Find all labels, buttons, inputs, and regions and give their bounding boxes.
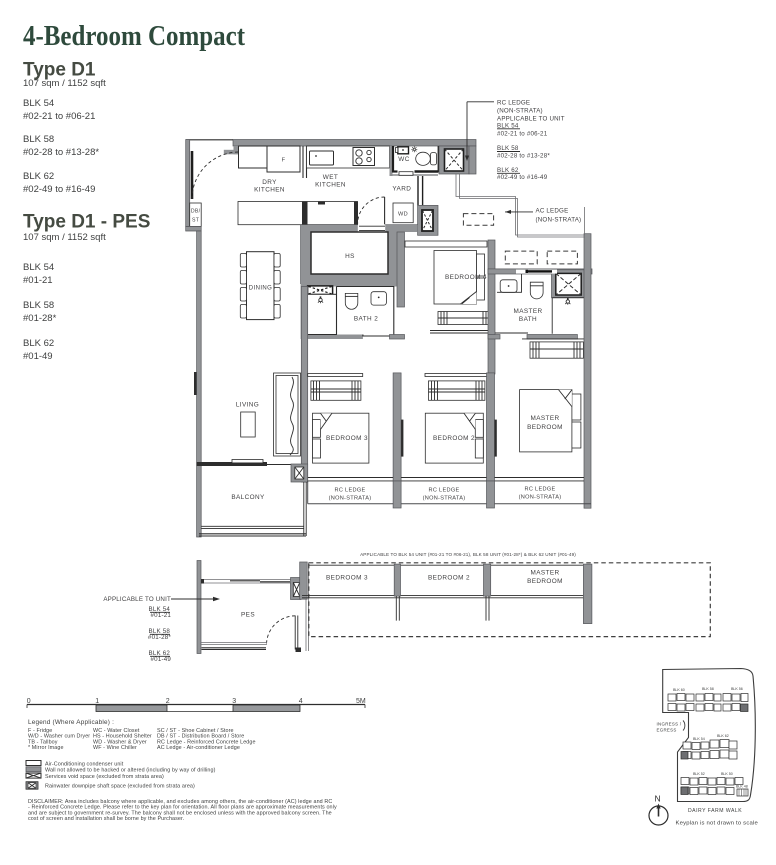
- svg-text:(NON-STRATA): (NON-STRATA): [519, 495, 562, 501]
- svg-text:BLK 62: BLK 62: [497, 167, 519, 174]
- svg-text:RC LEDGE: RC LEDGE: [497, 99, 530, 106]
- svg-text:BATH 2: BATH 2: [354, 316, 378, 323]
- svg-text:RC LEDGE: RC LEDGE: [429, 488, 460, 494]
- svg-text:(NON-STRATA): (NON-STRATA): [497, 108, 543, 115]
- svg-text:BLK 62: BLK 62: [23, 171, 54, 182]
- svg-text:cost of screen and installatio: cost of screen and installation shall be…: [28, 816, 184, 822]
- svg-text:#01-49: #01-49: [151, 656, 172, 663]
- svg-text:Services void space (excluded: Services void space (excluded from strat…: [45, 774, 164, 780]
- svg-text:YARD: YARD: [392, 186, 411, 193]
- svg-text:F: F: [282, 158, 286, 164]
- svg-text:BLK 58: BLK 58: [497, 145, 519, 152]
- svg-text:#01-28*: #01-28*: [148, 634, 171, 641]
- svg-text:AC Ledge - Air-conditioner Led: AC Ledge - Air-conditioner Ledge: [157, 745, 240, 751]
- svg-text:BALCONY: BALCONY: [231, 494, 265, 501]
- svg-text:(NON-STRATA): (NON-STRATA): [329, 496, 372, 502]
- svg-text:BEDROOM 3: BEDROOM 3: [326, 435, 368, 442]
- svg-text:WD: WD: [398, 212, 408, 218]
- svg-text:Type D1 - PES: Type D1 - PES: [23, 212, 150, 233]
- svg-text:WF - Wine Chiller: WF - Wine Chiller: [93, 745, 137, 751]
- svg-text:(NON-STRATA): (NON-STRATA): [536, 217, 582, 224]
- svg-text:107 sqm / 1152 sqft: 107 sqm / 1152 sqft: [23, 232, 106, 243]
- svg-text:107 sqm / 1152 sqft: 107 sqm / 1152 sqft: [23, 78, 106, 89]
- svg-text:BLK 58: BLK 58: [702, 687, 714, 691]
- svg-text:KITCHEN: KITCHEN: [254, 187, 285, 194]
- svg-text:APPLICABLE TO UNIT: APPLICABLE TO UNIT: [103, 596, 171, 603]
- svg-text:BEDROOM 4: BEDROOM 4: [445, 274, 487, 281]
- svg-text:#01-28*: #01-28*: [23, 313, 57, 324]
- svg-text:BLK 58: BLK 58: [23, 300, 54, 311]
- svg-text:#02-28 to #13-28*: #02-28 to #13-28*: [497, 152, 550, 159]
- svg-text:#02-49 to #16-49: #02-49 to #16-49: [497, 174, 548, 181]
- svg-text:LIVING: LIVING: [236, 402, 259, 409]
- svg-text:BLK 52: BLK 52: [693, 772, 705, 776]
- svg-text:BLK 62: BLK 62: [717, 734, 729, 738]
- svg-text:MASTER: MASTER: [530, 415, 559, 422]
- svg-text:BEDROOM 2: BEDROOM 2: [433, 435, 475, 442]
- svg-text:#01-49: #01-49: [23, 351, 53, 362]
- svg-text:N: N: [655, 794, 661, 804]
- svg-text:BLK 50: BLK 50: [721, 772, 733, 776]
- svg-text:INGRESS /: INGRESS /: [657, 722, 682, 727]
- svg-text:BEDROOM: BEDROOM: [527, 578, 563, 585]
- svg-text:DAIRY FARM WALK: DAIRY FARM WALK: [688, 808, 742, 814]
- svg-text:#02-21 to #06-21: #02-21 to #06-21: [23, 111, 95, 122]
- svg-text:#02-21 to #06-21: #02-21 to #06-21: [497, 131, 548, 138]
- svg-text:BLK 58: BLK 58: [23, 134, 54, 145]
- svg-text:#02-49 to #16-49: #02-49 to #16-49: [23, 184, 95, 195]
- svg-text:Keyplan is not drawn to scale: Keyplan is not drawn to scale: [676, 821, 759, 827]
- svg-text:DINING: DINING: [249, 286, 272, 292]
- svg-text:WC: WC: [398, 156, 409, 163]
- svg-text:#02-28 to #13-28*: #02-28 to #13-28*: [23, 147, 99, 158]
- svg-text:Rainwater downpipe shaft space: Rainwater downpipe shaft space (excluded…: [45, 784, 195, 790]
- svg-text:DB/: DB/: [191, 209, 201, 215]
- svg-text:RC LEDGE: RC LEDGE: [525, 487, 556, 493]
- svg-text:#01-21: #01-21: [151, 612, 172, 619]
- svg-text:BLK 48: BLK 48: [736, 785, 748, 789]
- svg-text:DRY: DRY: [262, 179, 277, 186]
- svg-text:BLK 54: BLK 54: [497, 122, 519, 129]
- svg-text:RC LEDGE: RC LEDGE: [335, 488, 366, 494]
- svg-text:BLK 60: BLK 60: [673, 688, 685, 692]
- svg-text:#01-21: #01-21: [23, 275, 53, 286]
- svg-text:BATH: BATH: [519, 316, 537, 323]
- svg-text:PES: PES: [241, 612, 255, 619]
- svg-text:MASTER: MASTER: [530, 570, 559, 577]
- svg-text:* Mirror Image: * Mirror Image: [28, 745, 64, 751]
- svg-text:BLK 56: BLK 56: [731, 687, 743, 691]
- svg-text:BLK 62: BLK 62: [23, 338, 54, 349]
- svg-text:BLK 54: BLK 54: [23, 262, 54, 273]
- svg-text:HS: HS: [345, 253, 355, 260]
- svg-text:4-Bedroom Compact: 4-Bedroom Compact: [23, 20, 245, 52]
- svg-text:WET: WET: [323, 174, 338, 181]
- svg-text:BEDROOM 2: BEDROOM 2: [428, 575, 470, 582]
- svg-text:Wall not allowed to be hacked: Wall not allowed to be hacked or altered…: [45, 768, 216, 774]
- svg-text:APPLICABLE TO UNIT: APPLICABLE TO UNIT: [497, 115, 565, 122]
- svg-text:BEDROOM: BEDROOM: [527, 424, 563, 431]
- svg-text:Air-Conditioning condenser uni: Air-Conditioning condenser unit: [45, 761, 124, 767]
- svg-text:APPLICABLE TO BLK 54 UNIT (#01: APPLICABLE TO BLK 54 UNIT (#01-21 TO #06…: [360, 552, 576, 557]
- svg-text:KITCHEN: KITCHEN: [315, 182, 346, 189]
- svg-text:ST: ST: [192, 218, 200, 224]
- svg-text:AC LEDGE: AC LEDGE: [536, 208, 569, 215]
- svg-text:BLK 54: BLK 54: [23, 98, 54, 109]
- svg-text:Legend (Where Applicable) :: Legend (Where Applicable) :: [28, 719, 114, 726]
- svg-text:BLK 54: BLK 54: [693, 737, 705, 741]
- svg-text:BEDROOM 3: BEDROOM 3: [326, 575, 368, 582]
- svg-text:(NON-STRATA): (NON-STRATA): [423, 496, 466, 502]
- svg-text:MASTER: MASTER: [513, 308, 542, 315]
- svg-text:EGRESS: EGRESS: [657, 728, 677, 733]
